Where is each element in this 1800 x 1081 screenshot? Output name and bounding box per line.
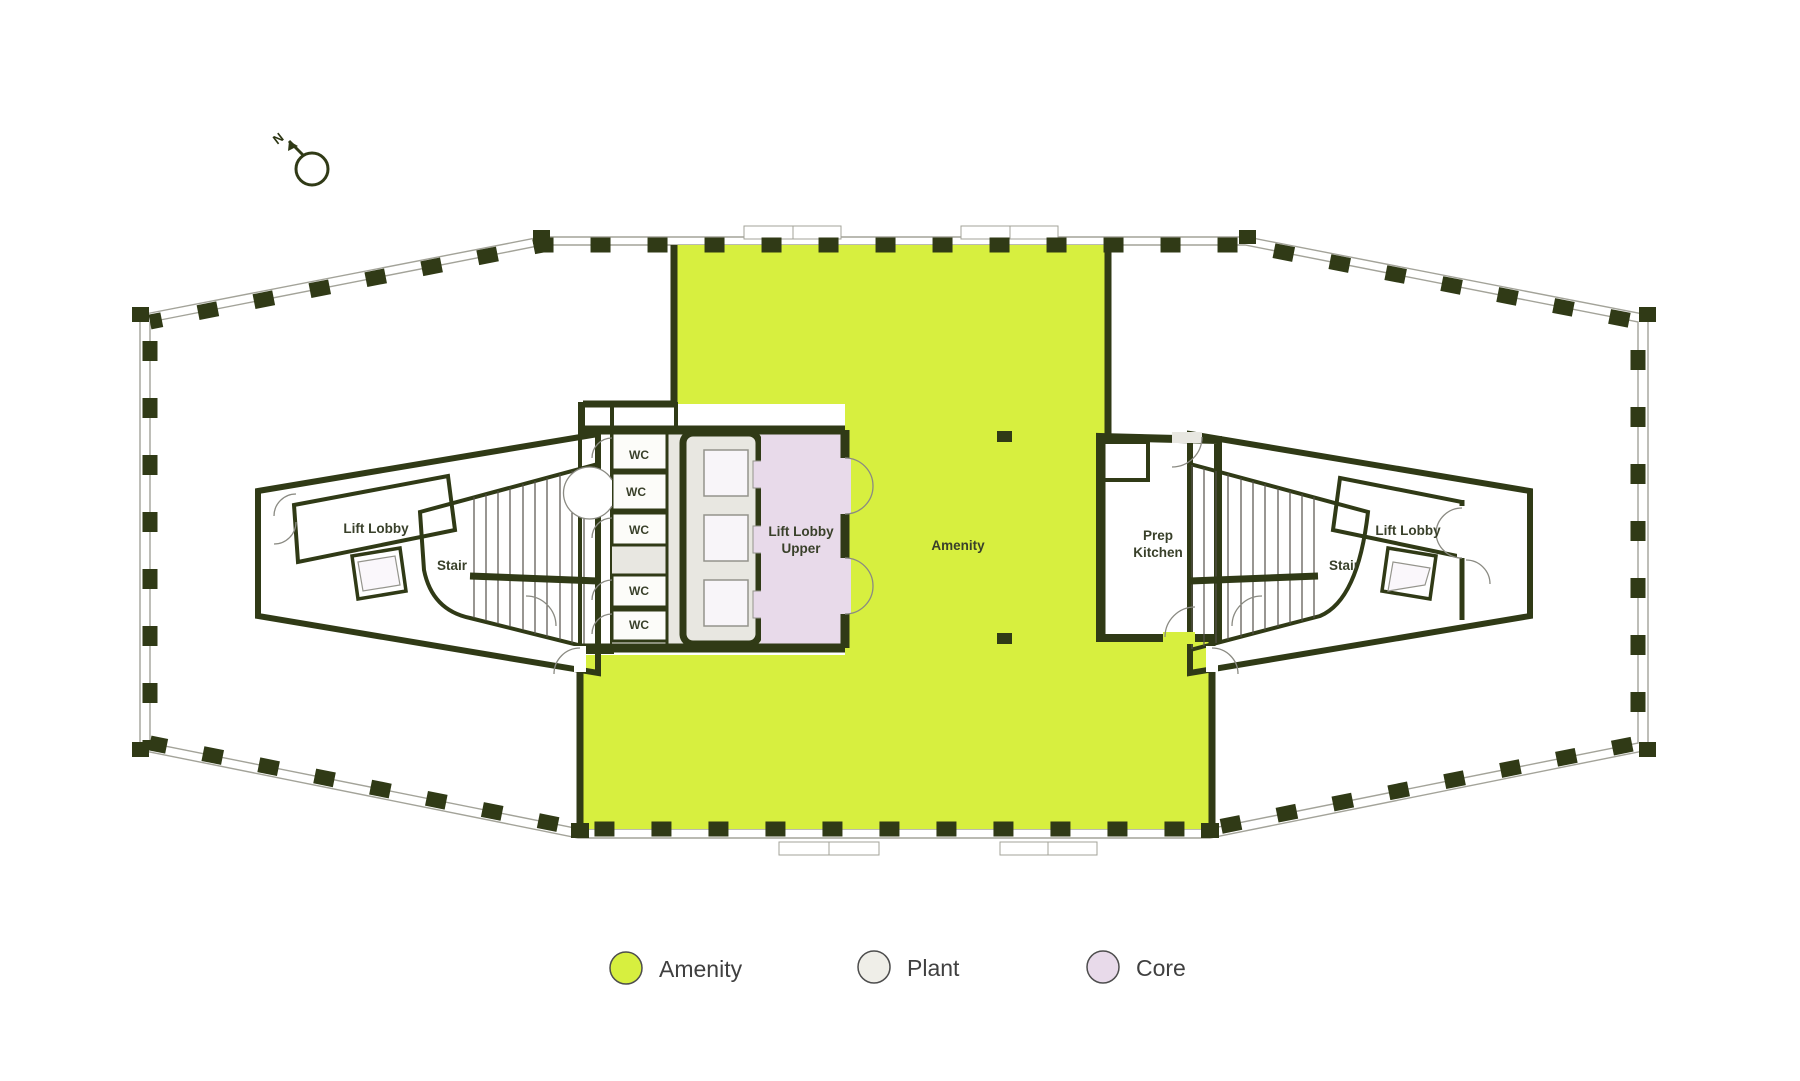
label-amenity: Amenity — [931, 538, 985, 553]
compass-circle — [296, 153, 328, 185]
legend-item-core: Core — [1087, 951, 1186, 983]
column — [997, 431, 1012, 442]
door-arc — [1232, 596, 1262, 626]
door-arc — [274, 522, 296, 544]
left-core — [258, 434, 598, 673]
legend-swatch-plant — [858, 951, 890, 983]
label-lift-lobby-upper-2: Upper — [781, 541, 821, 556]
label-wc-1: WC — [629, 448, 649, 462]
legend-swatch-amenity — [610, 952, 642, 984]
door-gap — [574, 646, 586, 672]
right-lift-car — [1388, 562, 1430, 591]
compass-n-label: N — [270, 130, 287, 148]
label-prep-kitchen-2: Kitchen — [1133, 545, 1183, 560]
label-prep-kitchen-1: Prep — [1143, 528, 1173, 543]
legend-item-amenity: Amenity — [610, 952, 743, 984]
north-arrow: N — [270, 130, 328, 185]
label-lift-lobby-upper-1: Lift Lobby — [768, 524, 834, 539]
label-wc-3: WC — [629, 523, 649, 537]
door-gap — [1206, 646, 1218, 672]
lift-car-3 — [704, 580, 748, 626]
floor-plan: Lift Lobby Stair WC WC WC WC WC Lift Lob… — [0, 0, 1800, 1081]
lift-car-1 — [704, 450, 748, 496]
legend-swatch-core — [1087, 951, 1119, 983]
legend-item-plant: Plant — [858, 951, 960, 983]
door-gap — [1163, 632, 1195, 644]
wc2-door-niche — [563, 467, 612, 519]
label-wc-4: WC — [629, 584, 649, 598]
door-arc — [526, 596, 556, 626]
label-left-stair: Stair — [437, 558, 468, 573]
door-arc — [1466, 560, 1490, 584]
door-gap — [1457, 506, 1467, 558]
label-left-lift-lobby: Lift Lobby — [343, 521, 409, 536]
label-wc-5: WC — [629, 618, 649, 632]
prep-kitchen-store — [1100, 442, 1148, 480]
legend-label-plant: Plant — [907, 955, 960, 981]
lift-cars — [704, 450, 748, 626]
label-wc-2: WC — [626, 485, 646, 499]
door-gap — [840, 558, 851, 614]
door-gap — [1172, 432, 1202, 443]
legend-label-core: Core — [1136, 955, 1186, 981]
legend-label-amenity: Amenity — [659, 956, 743, 982]
legend: Amenity Plant Core — [610, 951, 1186, 984]
right-stair-landing-wall — [1190, 576, 1318, 581]
left-lift-lobby-room — [294, 476, 455, 562]
left-lift-car — [358, 556, 400, 591]
lift-car-2 — [704, 515, 748, 561]
label-right-lift-lobby: Lift Lobby — [1375, 523, 1441, 538]
column — [997, 633, 1012, 644]
door-gap — [840, 458, 851, 514]
label-right-stair: Stair — [1329, 558, 1360, 573]
